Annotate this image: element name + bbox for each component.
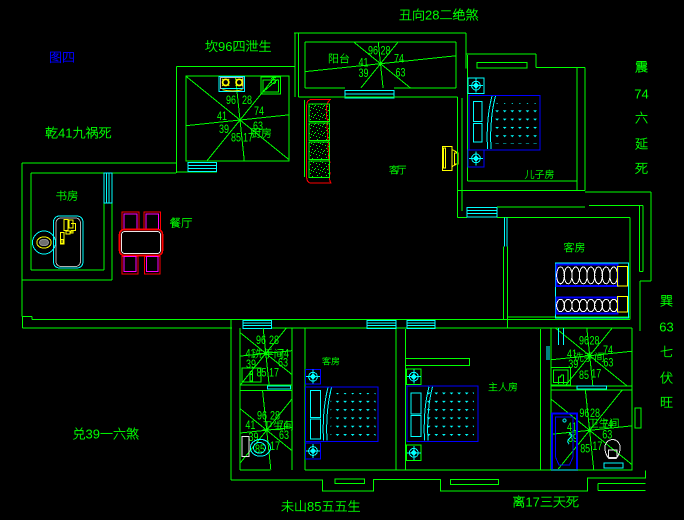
svg-text:85: 85 (580, 442, 590, 456)
svg-text:96: 96 (368, 44, 378, 58)
svg-text:63: 63 (279, 428, 289, 442)
svg-text:96: 96 (257, 409, 267, 423)
svg-text:85: 85 (231, 131, 241, 145)
svg-text:63: 63 (659, 320, 673, 335)
svg-text:17: 17 (270, 439, 280, 453)
svg-text:41: 41 (217, 109, 227, 123)
svg-text:85: 85 (579, 368, 589, 382)
svg-text:28: 28 (269, 333, 279, 347)
svg-text:17: 17 (525, 495, 539, 510)
svg-text:17: 17 (269, 366, 279, 380)
svg-text:74: 74 (634, 87, 648, 102)
svg-text:39: 39 (568, 357, 578, 371)
svg-text:17: 17 (591, 367, 601, 381)
svg-text:17: 17 (592, 439, 602, 453)
svg-text:63: 63 (396, 65, 406, 79)
svg-text:28: 28 (590, 406, 600, 420)
svg-text:63: 63 (253, 119, 263, 133)
svg-text:41: 41 (58, 126, 72, 141)
svg-text:85: 85 (307, 499, 321, 514)
svg-text:96: 96 (579, 334, 589, 348)
svg-text:28: 28 (425, 8, 439, 23)
svg-text:96: 96 (226, 93, 236, 107)
svg-text:74: 74 (394, 52, 404, 66)
svg-text:39: 39 (359, 66, 369, 80)
svg-text:74: 74 (254, 104, 264, 118)
svg-text:28: 28 (242, 93, 252, 107)
svg-text:28: 28 (590, 334, 600, 348)
svg-text:28: 28 (381, 44, 391, 58)
svg-text:39: 39 (246, 357, 256, 371)
svg-text:63: 63 (603, 356, 613, 370)
svg-text:39: 39 (86, 427, 100, 442)
svg-text:96: 96 (579, 406, 589, 420)
svg-text:96: 96 (218, 39, 232, 54)
svg-text:96: 96 (256, 333, 266, 347)
svg-text:39: 39 (219, 122, 229, 136)
